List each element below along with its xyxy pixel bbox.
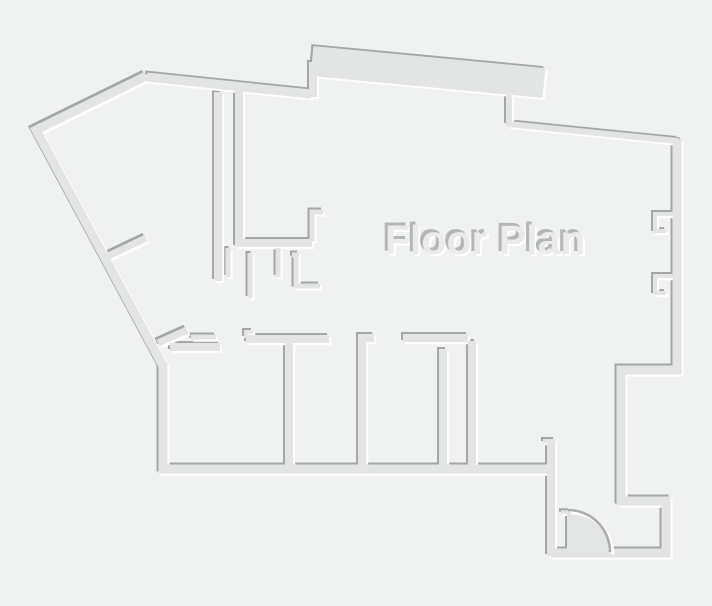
wall-bath-stub-right [314, 214, 325, 243]
wall-bath-fixture [292, 255, 320, 286]
floor-plan-stage: Floor Plan [0, 0, 712, 606]
wall-bath-wall [241, 92, 314, 245]
wall-top-right-diagonal [508, 124, 678, 141]
floor-plan-svg [0, 0, 712, 606]
wall-right-and-entry-outer [549, 137, 675, 551]
wall-outer-left-upper-diagonal [36, 76, 163, 366]
wall-bath-wall [239, 90, 312, 243]
wall-bath-wall [237, 88, 310, 241]
wall-right-and-entry-outer [551, 139, 677, 553]
floor-plan-title: Floor Plan [385, 217, 585, 264]
